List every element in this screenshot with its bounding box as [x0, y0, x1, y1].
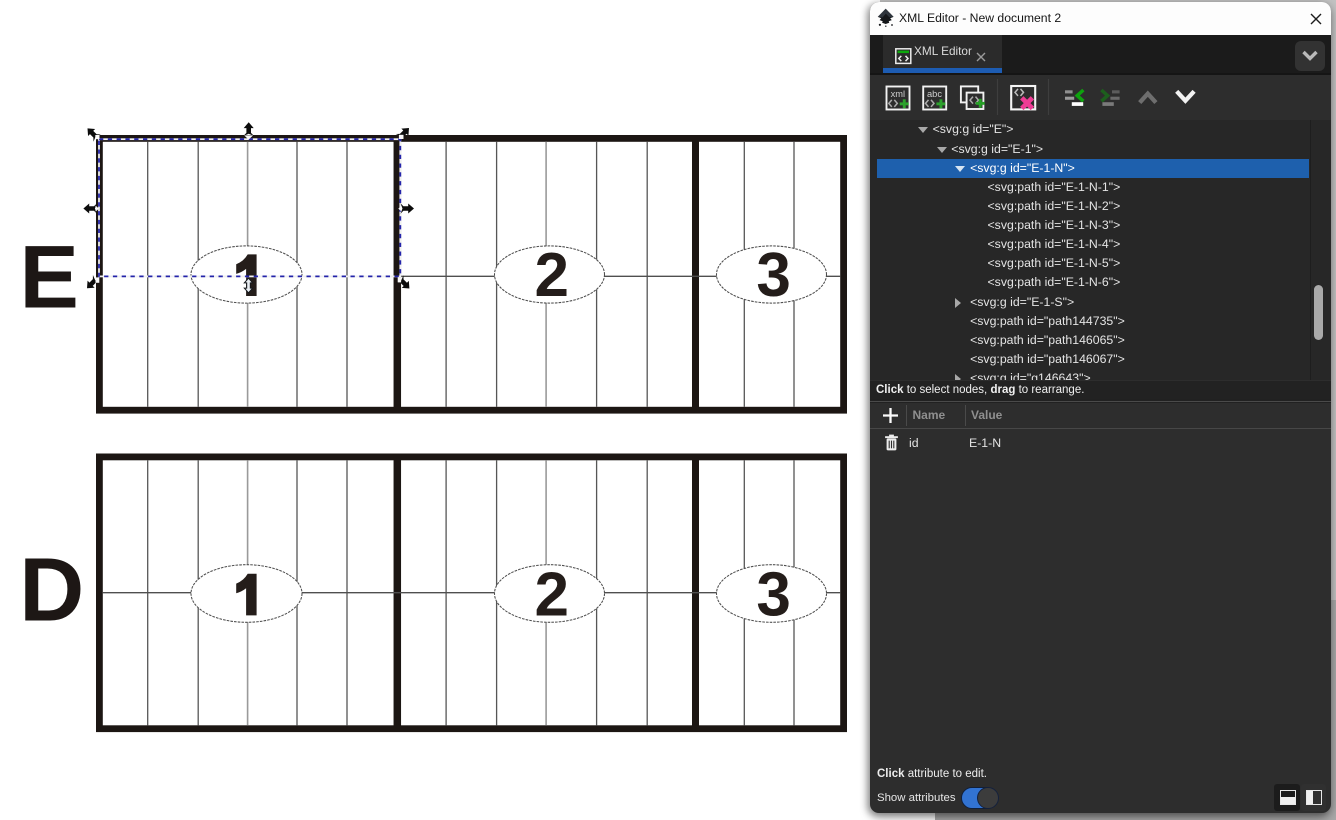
svg-text:xml: xml: [891, 89, 905, 99]
svg-text:3: 3: [756, 560, 790, 629]
svg-text:E: E: [20, 227, 79, 327]
svg-text:abc: abc: [927, 89, 942, 99]
svg-text:2: 2: [535, 560, 569, 629]
svg-text:3: 3: [756, 241, 790, 310]
svg-text:2: 2: [535, 241, 569, 310]
svg-text:D: D: [19, 541, 84, 641]
